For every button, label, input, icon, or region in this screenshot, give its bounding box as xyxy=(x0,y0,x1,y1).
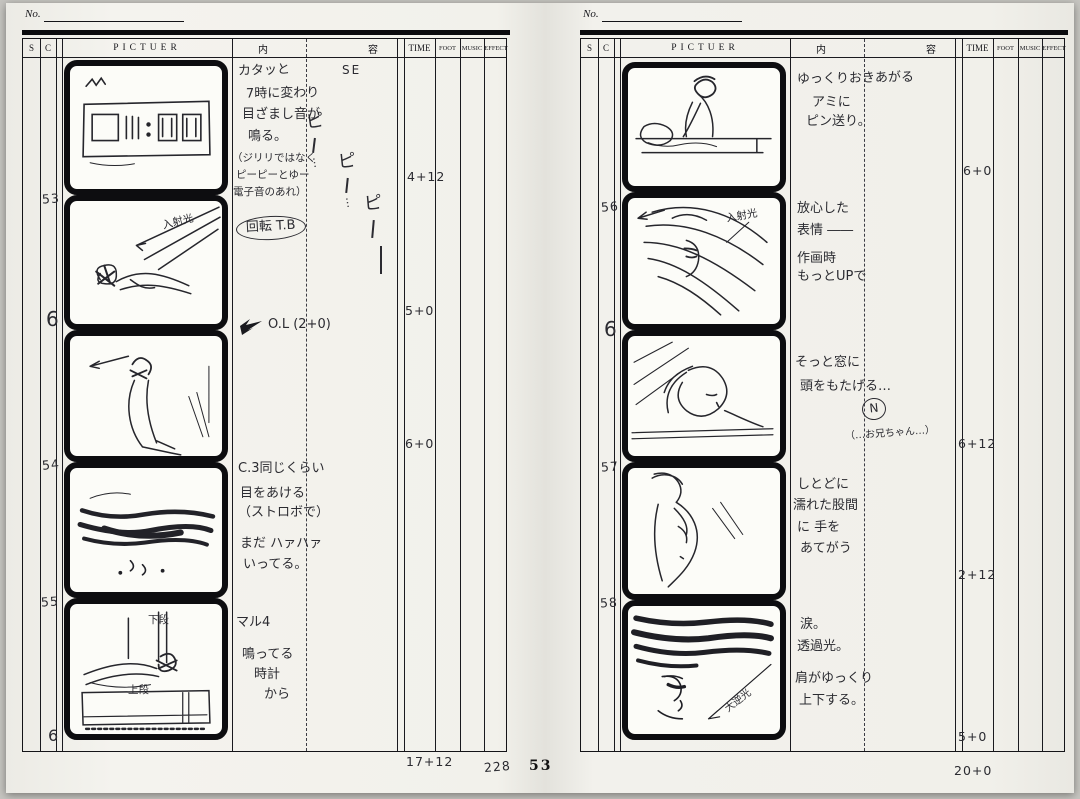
col-header-c: C xyxy=(40,39,56,57)
note-line: 電子音のあれ） xyxy=(233,186,307,198)
col-divider xyxy=(404,39,405,751)
transition-zigzag-icon xyxy=(239,318,263,336)
note-line: もっとUPで xyxy=(797,270,866,285)
note-line: 濡れた股間 xyxy=(793,499,858,514)
col-divider xyxy=(955,39,956,751)
time-value: 6+0 xyxy=(405,437,434,451)
note-line: 上下する。 xyxy=(799,694,864,709)
cut-number: 55 xyxy=(41,594,60,610)
cut-number: 6 xyxy=(46,308,59,331)
page-number: 53 xyxy=(529,758,552,774)
note-line: 鳴ってる xyxy=(242,648,293,663)
se-label: SE xyxy=(342,64,361,78)
note-line: ピン送り。 xyxy=(806,115,871,130)
col-header-content-right: 容 xyxy=(358,39,388,57)
panel-sketch-alarm-clock xyxy=(70,66,222,189)
note-line: カタッと xyxy=(238,63,291,80)
panel-sketch-head-by-window xyxy=(628,336,780,456)
no-label-left: No. xyxy=(25,8,41,20)
time-total: 17+12 xyxy=(406,755,453,769)
cut-number: 6 xyxy=(48,727,58,745)
col-header-content-left: 内 xyxy=(248,39,278,57)
top-rule-right xyxy=(580,30,1068,35)
col-divider xyxy=(40,39,41,751)
col-divider xyxy=(614,39,615,751)
no-underline-left xyxy=(44,21,184,22)
panel-sketch-closed-eyes-closeup xyxy=(70,468,222,592)
note-line: に 手を xyxy=(797,521,840,536)
camera-note-rotate-tb: 回転 T.B xyxy=(236,216,306,240)
se-long-stroke xyxy=(380,246,382,274)
col-header-picture: PICTUER xyxy=(620,39,790,57)
col-divider xyxy=(1042,39,1043,751)
col-header-effect: EFFECT xyxy=(484,39,508,57)
col-header-time: TIME xyxy=(404,39,435,57)
time-value: 6+0 xyxy=(963,164,992,178)
col-header-s: S xyxy=(581,39,598,57)
no-label-right: No. xyxy=(583,8,599,20)
panel-sketch-sleeping-light xyxy=(70,201,222,324)
note-line: いってる。 xyxy=(243,558,307,573)
col-divider xyxy=(484,39,485,751)
upper-bunk-label: 上段 xyxy=(128,682,149,697)
col-header-music: MUSIC xyxy=(1018,39,1042,57)
header-row-line xyxy=(23,57,506,58)
cut-tally: 228 xyxy=(483,759,511,776)
overlap-note: O.L (2+0) xyxy=(268,318,331,333)
col-divider xyxy=(397,39,398,751)
storyboard-scan: No. S C PICTUER 内 容 TIME FOOT MUSIC EFFE… xyxy=(0,0,1080,799)
note-line: あてがう xyxy=(800,542,852,557)
note-line: 肩がゆっくり xyxy=(795,672,873,687)
time-value: 2+12 xyxy=(958,568,996,582)
note-line: そっと窓に xyxy=(795,356,860,371)
col-header-picture: PICTUER xyxy=(62,39,232,57)
panel-sketch-backlit-face xyxy=(628,606,780,734)
col-divider xyxy=(790,39,791,751)
cut-number: 6 xyxy=(604,318,617,341)
note-line: 涙。 xyxy=(800,618,826,633)
cut-number: 53 xyxy=(42,191,61,207)
note-line: まだ ハァハァ xyxy=(240,537,322,552)
time-value: 4+12 xyxy=(407,170,445,184)
panel-frame xyxy=(64,60,228,195)
narration-mark: N xyxy=(862,398,886,420)
se-beep: ピ xyxy=(363,193,383,215)
time-value: 5+0 xyxy=(405,304,434,318)
note-line: C.3同じくらい xyxy=(238,462,324,477)
note-line: （ジリリではなく xyxy=(232,152,316,164)
col-divider xyxy=(56,39,57,751)
time-total: 20+0 xyxy=(954,764,992,778)
panel-sketch-torso xyxy=(628,468,780,594)
note-line: 頭をもたげる… xyxy=(800,380,891,395)
note-line: 透過光。 xyxy=(797,640,849,655)
col-divider xyxy=(598,39,599,751)
col-divider xyxy=(232,39,233,751)
cut-number: 56 xyxy=(600,199,619,215)
col-header-s: S xyxy=(23,39,40,57)
top-rule-left xyxy=(22,30,510,35)
col-header-foot: FOOT xyxy=(993,39,1018,57)
lower-bunk-label: 下段 xyxy=(148,612,169,627)
panel-frame xyxy=(622,62,786,192)
cut-number: 58 xyxy=(600,596,619,611)
note-line: マル4 xyxy=(236,616,270,631)
note-line: 放心した xyxy=(797,202,849,217)
note-line: ピーピーとゆー xyxy=(236,169,310,181)
panel-sketch-waking-in-bed xyxy=(628,68,780,186)
no-underline-right xyxy=(602,21,742,22)
note-line: 作画時 xyxy=(797,252,836,267)
panel-frame xyxy=(622,330,786,462)
note-line: （ストロボで） xyxy=(238,506,329,521)
note-line: ゆっくりおきあがる xyxy=(797,71,914,88)
note-line: 鳴る。 xyxy=(248,130,287,145)
panel-frame xyxy=(64,330,228,462)
header-row-line xyxy=(581,57,1064,58)
panel-frame xyxy=(622,462,786,600)
col-header-foot: FOOT xyxy=(435,39,460,57)
se-beep: ピ xyxy=(305,111,326,134)
col-header-content-left: 内 xyxy=(806,39,836,57)
col-header-music: MUSIC xyxy=(460,39,484,57)
panel-frame xyxy=(64,598,228,740)
note-line: アミに xyxy=(812,96,851,111)
content-dashed-divider xyxy=(306,39,307,751)
note-line: 目をあける xyxy=(240,487,305,502)
note-line: 7時に変わり xyxy=(246,86,320,102)
note-line: 時計 xyxy=(254,668,280,683)
se-trail-dots: … xyxy=(342,196,356,209)
col-header-c: C xyxy=(598,39,614,57)
col-divider xyxy=(1018,39,1019,751)
note-line: しとどに xyxy=(797,478,849,493)
col-divider xyxy=(962,39,963,751)
col-header-time: TIME xyxy=(962,39,993,57)
cut-number: 57 xyxy=(601,459,620,475)
time-value: 5+0 xyxy=(958,730,987,744)
col-divider xyxy=(435,39,436,751)
content-dashed-divider xyxy=(864,39,865,751)
panel-frame xyxy=(622,192,786,330)
note-line: から xyxy=(264,688,290,703)
se-trail-dots: … xyxy=(309,156,323,169)
se-beep: ピ xyxy=(337,151,357,173)
panel-sketch-bunk-bed xyxy=(70,604,222,734)
col-divider xyxy=(993,39,994,751)
col-header-effect: EFFECT xyxy=(1042,39,1066,57)
col-header-content-right: 容 xyxy=(916,39,946,57)
panel-frame xyxy=(64,195,228,330)
time-value: 6+12 xyxy=(958,437,996,451)
note-line: 表情 ―― xyxy=(797,224,853,239)
panel-frame xyxy=(622,600,786,740)
col-divider xyxy=(460,39,461,751)
panel-frame xyxy=(64,462,228,598)
cut-number: 54 xyxy=(41,457,60,473)
panel-sketch-rising-figure xyxy=(70,336,222,456)
